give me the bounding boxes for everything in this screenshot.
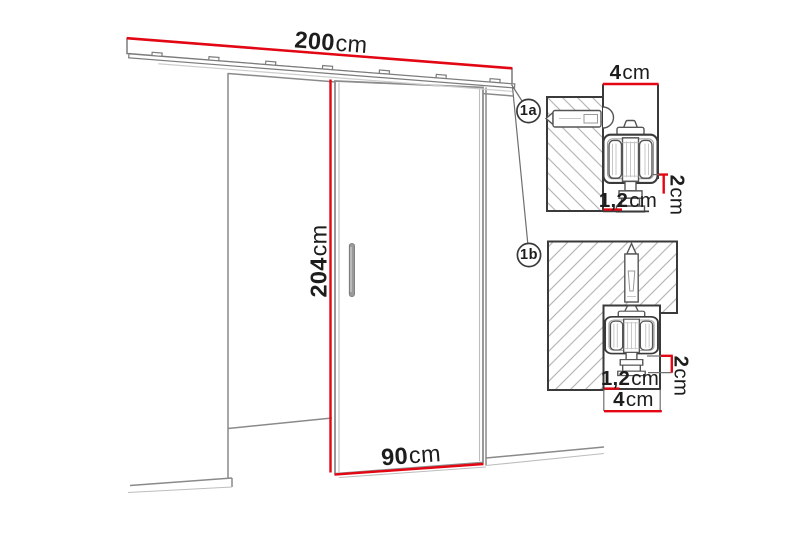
- door-width-label: 90cm: [380, 442, 441, 470]
- fixing-screw: [625, 244, 638, 303]
- detail-1a-wall-gap-label: 1,2cm: [599, 190, 657, 211]
- sliding-door: [331, 80, 487, 478]
- detail-1b-clearance-label: 2cm: [670, 355, 691, 396]
- detail-1a-track-depth-label: 4cm: [610, 62, 651, 83]
- door-handle: [349, 244, 354, 297]
- callout-1b-label: 1b: [520, 248, 538, 263]
- callout-1a-label: 1a: [520, 104, 537, 119]
- detail-1b-track-depth-label: 4cm: [613, 389, 654, 410]
- detail-1b-wall-gap-label: 1,2cm: [601, 368, 659, 389]
- detail-1a-clearance-label: 2cm: [665, 175, 686, 216]
- diagram-canvas: 200cm 204cm 90cm 1a 1b 4cm 1,2cm 2cm 2cm…: [0, 0, 800, 533]
- rail-width-label: 200cm: [294, 28, 369, 57]
- door-fixing-plate: [546, 111, 601, 128]
- door-height-label: 204cm: [307, 224, 331, 297]
